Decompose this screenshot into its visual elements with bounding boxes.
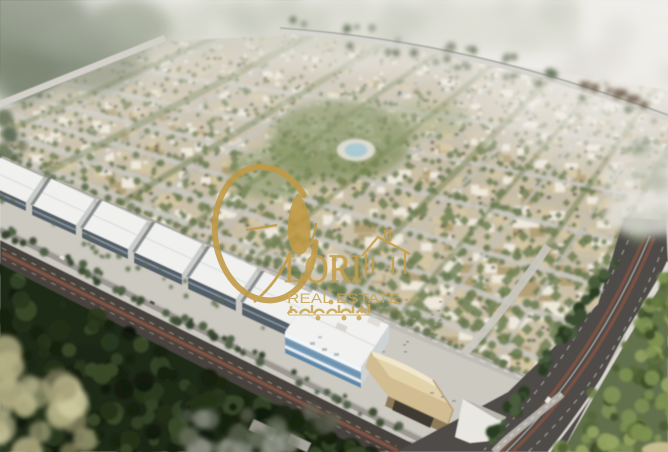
svg-text:REAL ESTATE: REAL ESTATE	[287, 290, 400, 306]
svg-text:LORI: LORI	[284, 246, 362, 291]
